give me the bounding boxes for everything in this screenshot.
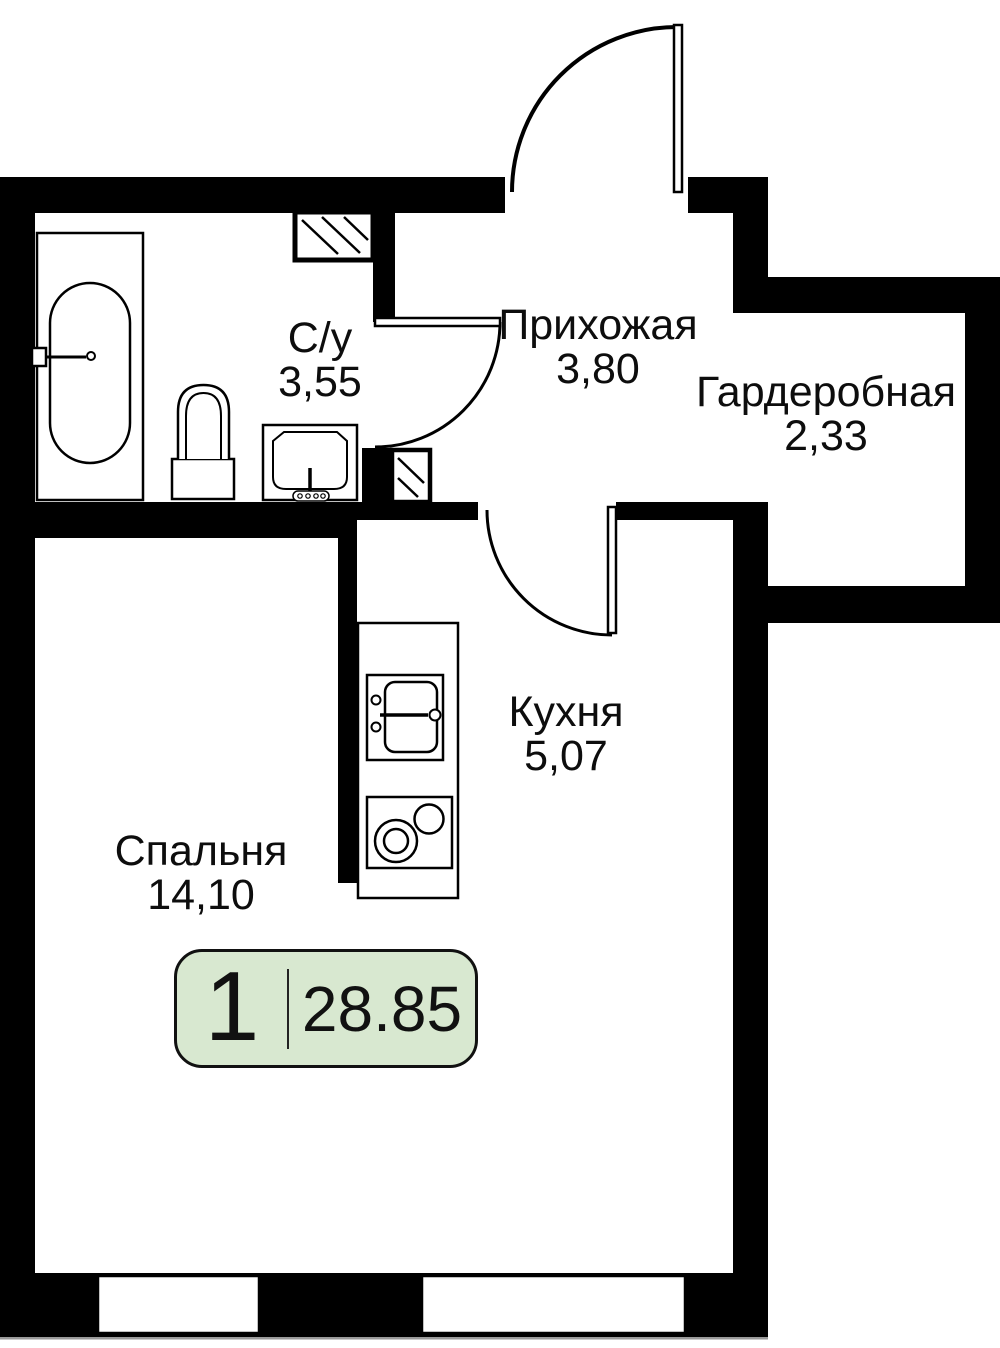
room-name: Гардеробная (676, 370, 976, 414)
room-area: 5,07 (446, 734, 686, 778)
wall-bathroom-bottom (35, 502, 357, 538)
stove-icon (367, 797, 452, 868)
floor-plan: С/у 3,55 Прихожая 3,80 Гардеробная 2,33 … (0, 0, 1000, 1348)
room-name: Прихожая (478, 303, 718, 347)
window-kitchen (422, 1276, 685, 1333)
badge-total-area: 28.85 (289, 977, 475, 1041)
room-name: Спальня (81, 829, 321, 873)
wall-hall-kitchen-right (616, 502, 733, 520)
wall-top-right (688, 177, 768, 213)
kitchen-sink-icon (367, 675, 443, 760)
kitchen-door-leaf (608, 507, 616, 633)
room-name: С/у (230, 316, 410, 360)
wall-wardrobe-top (733, 277, 1000, 313)
ventilation-shaft-icon (295, 212, 373, 260)
bathtub-icon (32, 233, 143, 500)
floor-plan-drawing (0, 0, 1000, 1348)
badge-rooms-count: 1 (177, 957, 287, 1061)
room-label-kitchen: Кухня 5,07 (446, 690, 686, 778)
window-bedroom (98, 1276, 259, 1333)
washbasin-icon (263, 425, 357, 501)
wall-left (0, 177, 35, 1337)
wall-hall-kitchen-left (357, 502, 478, 520)
entrance-door-leaf (674, 25, 682, 192)
room-name: Кухня (446, 690, 686, 734)
apartment-badge: 1 28.85 (174, 949, 478, 1068)
ventilation-shaft-small-icon (392, 450, 430, 502)
room-label-wardrobe: Гардеробная 2,33 (676, 370, 976, 458)
wall-bathroom-door-lower (362, 448, 392, 502)
room-label-bathroom: С/у 3,55 (230, 316, 410, 404)
room-label-bedroom: Спальня 14,10 (81, 829, 321, 917)
wall-wardrobe-bottom (768, 586, 965, 623)
room-area: 14,10 (81, 873, 321, 917)
wall-bathroom-door-upper (373, 213, 395, 322)
toilet-icon (172, 385, 234, 499)
window-sill-line (0, 1337, 768, 1340)
wall-top-left (0, 177, 505, 213)
wall-kitchen-left (338, 538, 357, 883)
room-area: 3,55 (230, 360, 410, 404)
wall-right-main (733, 502, 768, 1337)
room-area: 2,33 (676, 414, 976, 458)
